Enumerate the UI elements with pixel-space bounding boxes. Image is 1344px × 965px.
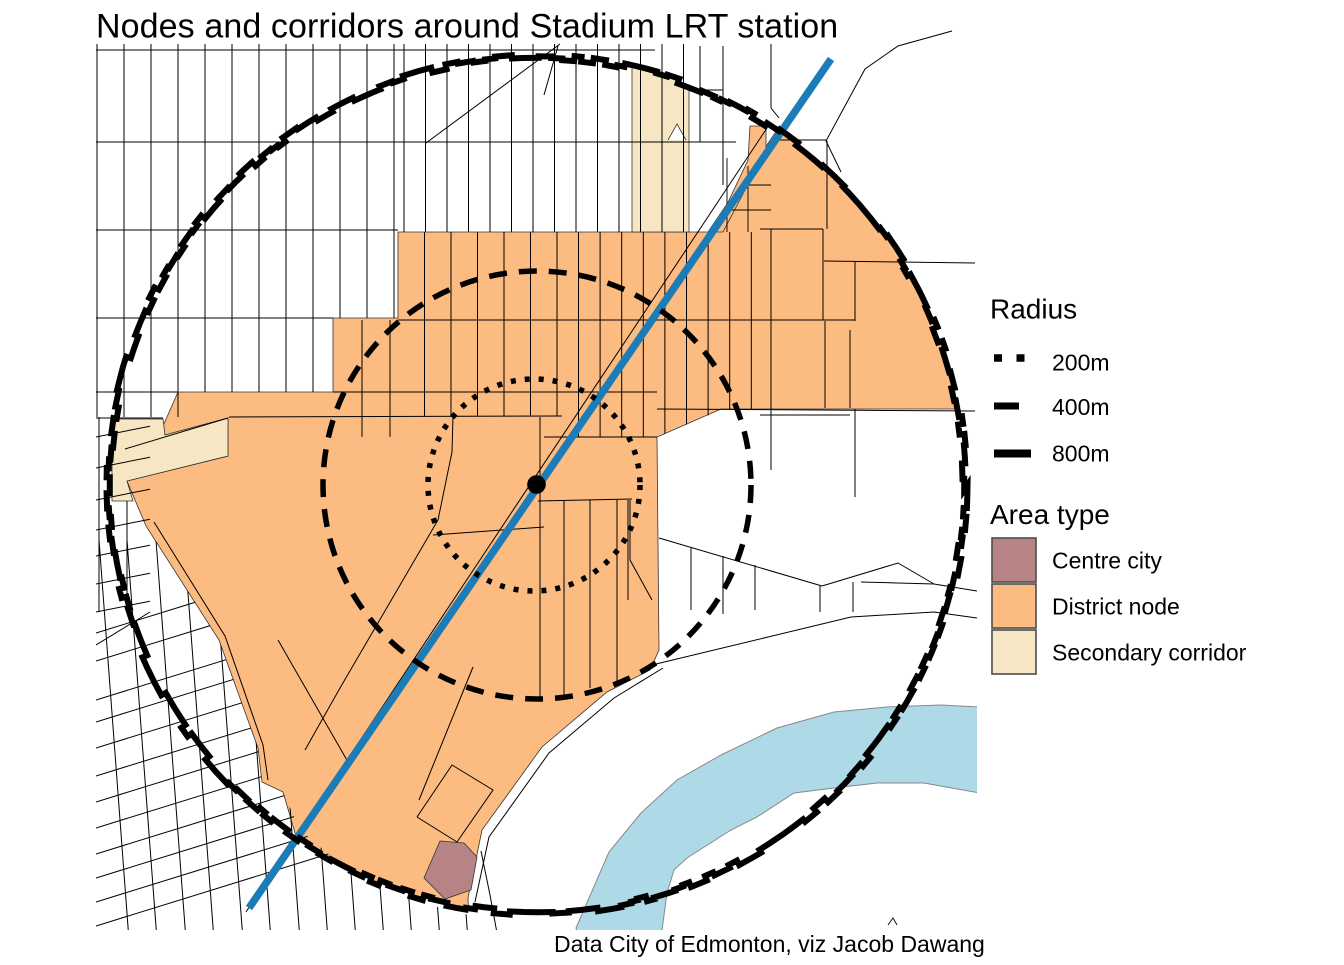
svg-text:Data City of Edmonton, viz Jac: Data City of Edmonton, viz Jacob Dawang	[554, 931, 985, 957]
svg-text:Nodes and corridors around Sta: Nodes and corridors around Stadium LRT s…	[96, 8, 838, 46]
svg-text:Centre city: Centre city	[1052, 548, 1162, 574]
svg-text:800m: 800m	[1052, 441, 1110, 467]
svg-text:200m: 200m	[1052, 350, 1110, 376]
svg-text:Secondary corridor: Secondary corridor	[1052, 640, 1247, 666]
svg-text:District node: District node	[1052, 594, 1180, 620]
svg-text:Radius: Radius	[990, 294, 1077, 325]
svg-text:400m: 400m	[1052, 394, 1110, 420]
svg-text:Area type: Area type	[990, 499, 1110, 530]
